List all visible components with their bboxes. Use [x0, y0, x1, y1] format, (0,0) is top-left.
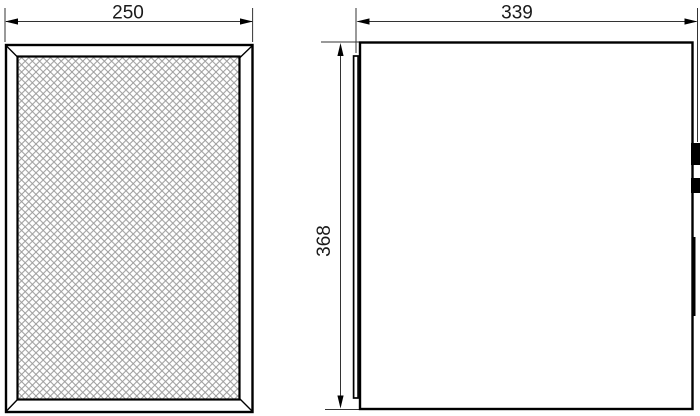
side-view: 339 368 — [314, 3, 700, 410]
rear-clip-lower — [691, 178, 700, 193]
front-width-dimension: 250 — [5, 3, 253, 43]
front-width-dimension-label: 250 — [112, 3, 144, 24]
arrowhead-up-icon — [337, 43, 343, 56]
side-front-flange — [354, 56, 359, 398]
arrowhead-right-icon — [240, 18, 253, 24]
arrowhead-right-icon — [685, 18, 698, 24]
side-housing-body — [360, 43, 693, 410]
front-mesh-panel — [18, 57, 240, 400]
front-view: 250 — [5, 3, 253, 413]
side-height-dimension: 368 — [314, 42, 359, 410]
arrowhead-left-icon — [5, 18, 18, 24]
rear-clip-upper — [691, 143, 700, 165]
arrowhead-down-icon — [337, 396, 343, 409]
arrowhead-left-icon — [357, 18, 370, 24]
two-view-drawing: 250 339 — [0, 0, 700, 416]
side-height-dimension-label: 368 — [314, 225, 335, 257]
side-depth-dimension-label: 339 — [501, 3, 533, 24]
technical-drawing-canvas: 250 339 — [0, 0, 700, 416]
